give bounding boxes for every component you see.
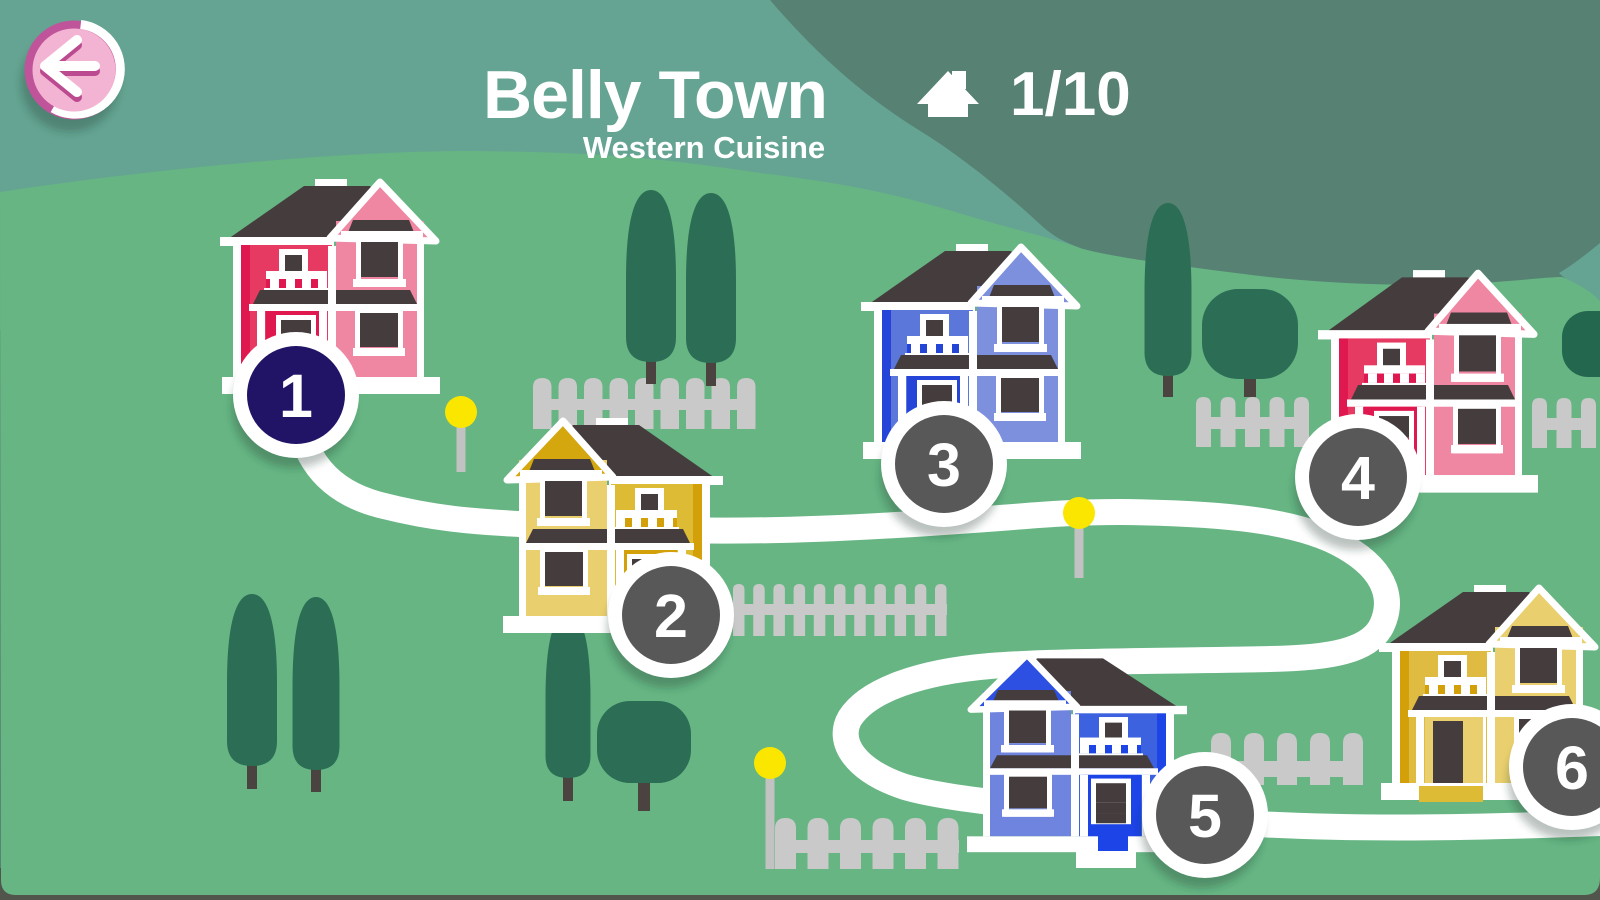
- svg-text:2: 2: [654, 582, 688, 650]
- svg-text:3: 3: [927, 431, 961, 499]
- svg-text:4: 4: [1341, 444, 1375, 512]
- svg-text:5: 5: [1188, 782, 1222, 850]
- svg-text:6: 6: [1555, 734, 1589, 802]
- svg-text:1: 1: [279, 362, 313, 430]
